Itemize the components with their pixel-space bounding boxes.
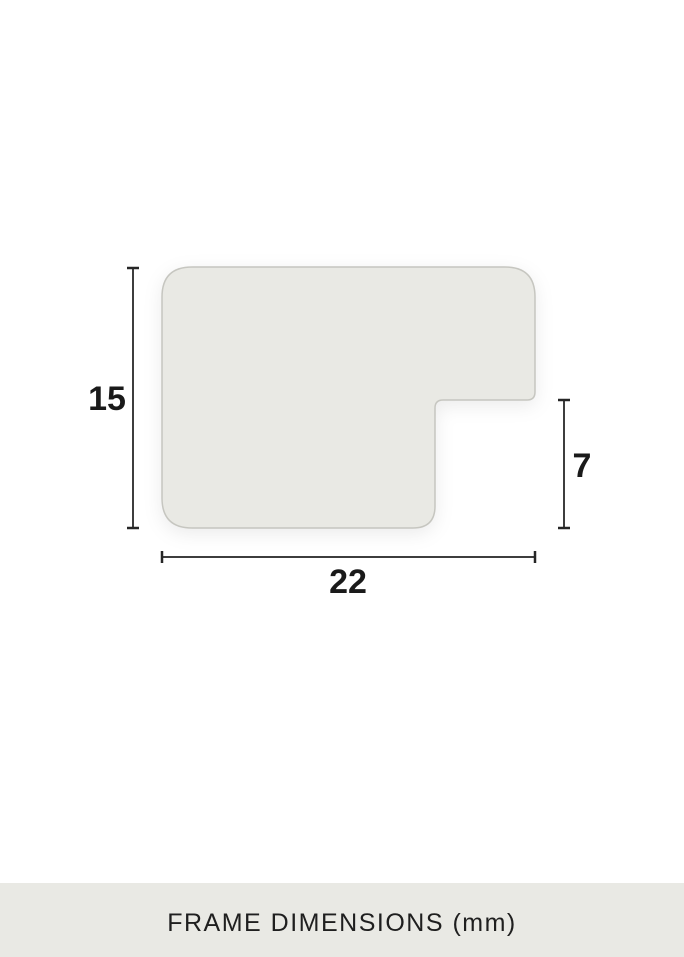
- width-dimension-label: 22: [329, 563, 367, 601]
- frame-profile-diagram: 15 7 22: [0, 0, 684, 883]
- footer-caption: FRAME DIMENSIONS (mm): [167, 903, 517, 938]
- width-dimension: 22: [162, 551, 535, 601]
- rabbet-dimension-label: 7: [573, 447, 592, 485]
- frame-profile-shape: [162, 267, 535, 528]
- footer-bar: FRAME DIMENSIONS (mm): [0, 883, 684, 957]
- frame-dimensions-page: 15 7 22 FRAME DIMENSIONS (mm): [0, 0, 684, 957]
- height-dimension-label: 15: [88, 380, 126, 418]
- height-dimension: 15: [88, 268, 139, 528]
- rabbet-height-dimension: 7: [558, 400, 591, 528]
